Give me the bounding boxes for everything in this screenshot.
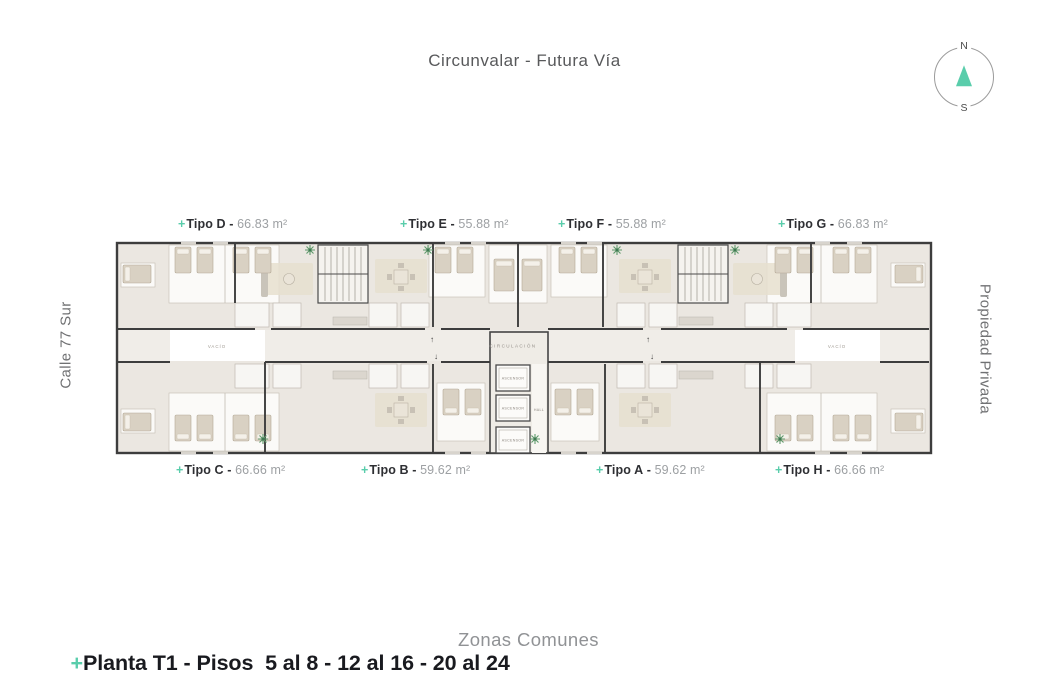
arrow-down-right-icon: ↓ [650, 352, 654, 361]
unit-separator: - [826, 217, 837, 231]
compass-needle-icon [956, 65, 972, 86]
unit-name: Tipo H [783, 463, 822, 477]
unit-label-tipo-d: +Tipo D - 66.83 m² [178, 217, 287, 231]
floor-plan-svg: CIRCULACIÓN HALL ASCENSOR ASCENSOR ASCEN… [115, 237, 933, 459]
unit-area: 55.88 m² [458, 217, 508, 231]
unit-label-tipo-h: +Tipo H - 66.66 m² [775, 463, 884, 477]
floor-plan: CIRCULACIÓN HALL ASCENSOR ASCENSOR ASCEN… [115, 237, 933, 459]
unit-area: 66.66 m² [235, 463, 285, 477]
unit-separator: - [643, 463, 654, 477]
floor-title-text: Planta T1 - Pisos 5 al 8 - 12 al 16 - 20… [83, 651, 510, 675]
plus-icon: + [400, 217, 407, 231]
plus-icon: + [778, 217, 785, 231]
plus-icon: + [775, 463, 782, 477]
street-label-left: Calle 77 Sur [58, 301, 75, 388]
unit-name: Tipo D [186, 217, 225, 231]
unit-name: Tipo B [369, 463, 408, 477]
unit-label-tipo-c: +Tipo C - 66.66 m² [176, 463, 285, 477]
unit-separator: - [226, 217, 237, 231]
compass: N S [934, 47, 994, 107]
unit-name: Tipo A [604, 463, 643, 477]
floor-title: +Planta T1 - Pisos 5 al 8 - 12 al 16 - 2… [47, 626, 510, 700]
plus-icon: + [178, 217, 185, 231]
unit-separator: - [823, 463, 834, 477]
unit-separator: - [604, 217, 615, 231]
unit-name: Tipo E [408, 217, 447, 231]
unit-name: Tipo G [786, 217, 826, 231]
unit-area: 59.62 m² [655, 463, 705, 477]
plus-icon: + [596, 463, 603, 477]
unit-separator: - [447, 217, 458, 231]
unit-area: 66.66 m² [834, 463, 884, 477]
compass-north-label: N [957, 40, 971, 52]
unit-area: 59.62 m² [420, 463, 470, 477]
unit-label-tipo-e: +Tipo E - 55.88 m² [400, 217, 509, 231]
page: Circunvalar - Futura Vía N S Calle 77 Su… [0, 0, 1049, 700]
unit-area: 66.83 m² [838, 217, 888, 231]
arrow-up-right-icon: ↑ [646, 335, 650, 344]
unit-label-tipo-f: +Tipo F - 55.88 m² [558, 217, 666, 231]
footer-plus-icon: + [71, 651, 83, 675]
elevator-label-3: ASCENSOR [502, 439, 525, 443]
void-label-left: VACÍO [208, 344, 226, 349]
unit-label-tipo-g: +Tipo G - 66.83 m² [778, 217, 888, 231]
unit-name: Tipo F [566, 217, 604, 231]
hall-label: HALL [534, 408, 544, 412]
unit-name: Tipo C [184, 463, 223, 477]
void-label-right: VACÍO [828, 344, 846, 349]
unit-label-tipo-b: +Tipo B - 59.62 m² [361, 463, 470, 477]
plus-icon: + [176, 463, 183, 477]
plus-icon: + [558, 217, 565, 231]
unit-area: 66.83 m² [237, 217, 287, 231]
compass-south-label: S [957, 102, 970, 114]
unit-separator: - [409, 463, 420, 477]
page-title: Circunvalar - Futura Vía [0, 51, 1049, 71]
elevator-label-2: ASCENSOR [502, 407, 525, 411]
unit-label-tipo-a: +Tipo A - 59.62 m² [596, 463, 705, 477]
unit-separator: - [224, 463, 235, 477]
arrow-down-left-icon: ↓ [434, 352, 438, 361]
unit-area: 55.88 m² [616, 217, 666, 231]
arrow-up-left-icon: ↑ [430, 335, 434, 344]
circulation-label: CIRCULACIÓN [489, 343, 536, 349]
street-label-right: Propiedad Privada [977, 284, 994, 414]
elevator-label-1: ASCENSOR [502, 377, 525, 381]
zonas-comunes-link[interactable]: Zonas Comunes [458, 629, 599, 651]
plus-icon: + [361, 463, 368, 477]
